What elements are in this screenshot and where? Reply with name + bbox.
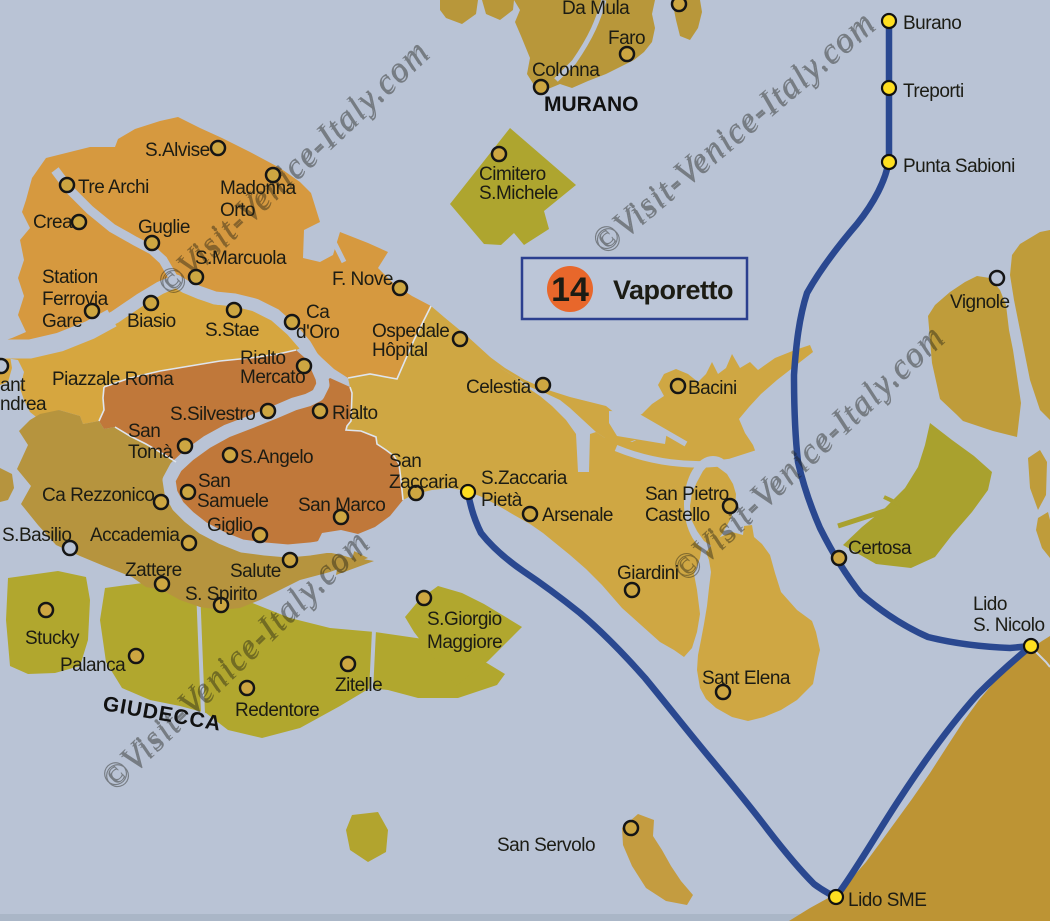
svg-text:San: San — [389, 451, 421, 472]
svg-text:Ferrovia: Ferrovia — [42, 289, 109, 310]
svg-text:San: San — [128, 421, 160, 442]
svg-text:Sant Elena: Sant Elena — [702, 668, 791, 689]
svg-text:Burano: Burano — [903, 13, 961, 34]
svg-text:Giglio: Giglio — [207, 515, 253, 536]
svg-text:Madonna: Madonna — [220, 178, 297, 199]
svg-text:Pietà: Pietà — [481, 490, 523, 511]
svg-text:Vaporetto: Vaporetto — [613, 275, 733, 305]
svg-text:Lido: Lido — [973, 594, 1007, 615]
svg-text:S. Spirito: S. Spirito — [185, 584, 257, 605]
svg-text:Punta Sabioni: Punta Sabioni — [903, 156, 1015, 177]
svg-text:ant: ant — [0, 375, 26, 396]
svg-text:Hôpital: Hôpital — [372, 340, 428, 361]
svg-text:S.Zaccaria: S.Zaccaria — [481, 468, 568, 489]
svg-text:Tre Archi: Tre Archi — [78, 177, 149, 198]
svg-text:Ospedale: Ospedale — [372, 321, 449, 342]
svg-text:Redentore: Redentore — [235, 700, 319, 721]
svg-text:Biasio: Biasio — [127, 311, 176, 332]
svg-text:Zattere: Zattere — [125, 560, 182, 581]
svg-text:S. Nicolo: S. Nicolo — [973, 615, 1045, 636]
svg-text:San Pietro: San Pietro — [645, 484, 729, 505]
svg-text:S.Basilio: S.Basilio — [2, 525, 71, 546]
svg-text:San Marco: San Marco — [298, 495, 385, 516]
svg-text:Castello: Castello — [645, 505, 710, 526]
svg-text:S.Stae: S.Stae — [205, 320, 259, 341]
svg-text:Faro: Faro — [608, 28, 645, 49]
svg-text:Giardini: Giardini — [617, 563, 678, 584]
svg-text:Arsenale: Arsenale — [542, 505, 613, 526]
svg-text:Crea: Crea — [33, 212, 73, 233]
svg-text:Maggiore: Maggiore — [427, 632, 502, 653]
svg-text:Guglie: Guglie — [138, 217, 190, 238]
svg-text:Treporti: Treporti — [903, 81, 964, 102]
svg-text:d'Oro: d'Oro — [296, 322, 339, 343]
svg-text:Stucky: Stucky — [25, 628, 80, 649]
svg-text:14: 14 — [551, 271, 589, 309]
svg-text:Tomà: Tomà — [128, 442, 173, 463]
svg-text:Zaccaria: Zaccaria — [389, 472, 459, 493]
svg-text:Celestia: Celestia — [466, 377, 532, 398]
svg-text:S.Michele: S.Michele — [479, 183, 558, 204]
svg-text:Piazzale Roma: Piazzale Roma — [52, 369, 174, 390]
svg-text:Samuele: Samuele — [197, 491, 269, 512]
svg-text:S.Angelo: S.Angelo — [240, 447, 313, 468]
svg-text:ndrea: ndrea — [0, 394, 47, 415]
svg-text:Da Mula: Da Mula — [562, 0, 630, 19]
svg-text:S.Marcuola: S.Marcuola — [195, 248, 287, 269]
svg-text:Rialto: Rialto — [240, 348, 286, 369]
svg-text:San Servolo: San Servolo — [497, 835, 595, 856]
svg-text:MURANO: MURANO — [544, 93, 639, 116]
svg-text:S.Silvestro: S.Silvestro — [170, 404, 255, 425]
svg-text:Gare: Gare — [42, 311, 82, 332]
svg-text:Cimitero: Cimitero — [479, 164, 546, 185]
svg-text:Zitelle: Zitelle — [335, 675, 382, 696]
svg-text:S.Alvise: S.Alvise — [145, 140, 210, 161]
svg-text:San: San — [198, 471, 230, 492]
svg-text:Ca: Ca — [306, 302, 330, 323]
svg-text:Vignole: Vignole — [950, 292, 1010, 313]
svg-text:Mercato: Mercato — [240, 367, 305, 388]
svg-text:Colonna: Colonna — [532, 60, 600, 81]
svg-text:Palanca: Palanca — [60, 655, 126, 676]
svg-text:Orto: Orto — [220, 200, 255, 221]
svg-text:Rialto: Rialto — [332, 403, 378, 424]
svg-text:Ca Rezzonico: Ca Rezzonico — [42, 485, 154, 506]
svg-text:Salute: Salute — [230, 561, 281, 582]
svg-text:Accademia: Accademia — [90, 525, 180, 546]
svg-text:S.Giorgio: S.Giorgio — [427, 609, 502, 630]
svg-text:Lido SME: Lido SME — [848, 890, 926, 911]
svg-text:Bacini: Bacini — [688, 378, 737, 399]
svg-text:Station: Station — [42, 267, 98, 288]
svg-text:F. Nove: F. Nove — [332, 269, 393, 290]
svg-text:Certosa: Certosa — [848, 538, 912, 559]
